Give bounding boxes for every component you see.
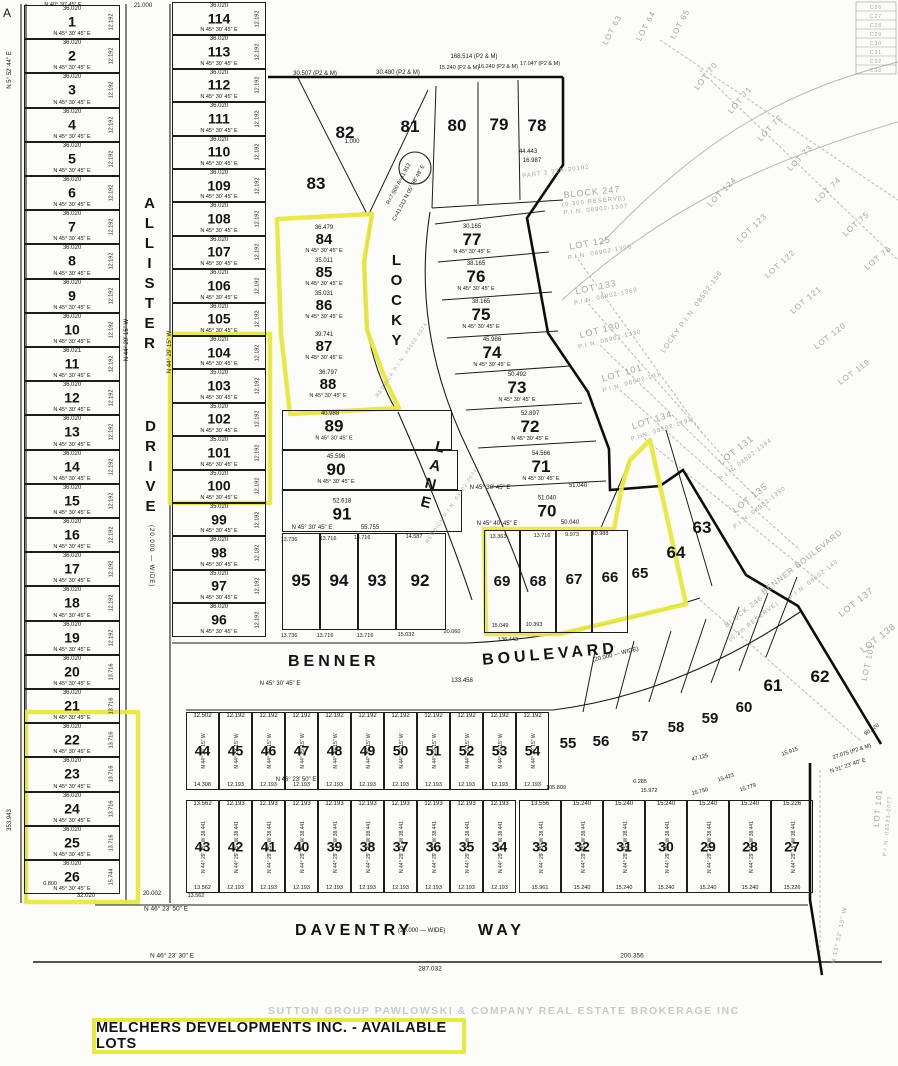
lot-14: 36.02014N 45° 30' 45" E12.192 <box>24 450 120 484</box>
parcel-outline <box>282 450 458 490</box>
lot-58: 58 <box>668 720 685 736</box>
dimension-label: 13.716 <box>534 533 551 539</box>
map-linework <box>0 0 898 1066</box>
street-label-drive: DRIVE <box>142 418 159 518</box>
dimension-label: 16.240 (P2 & M) <box>478 64 518 70</box>
dimension-label: 168.514 (P2 & M) <box>450 54 497 60</box>
dimension-label: 287.032 <box>418 966 442 973</box>
legend-box: MELCHERS DEVELOPMENTS INC. - AVAILABLE L… <box>92 1018 466 1054</box>
adjacent-lot-label: LOT 135 <box>730 481 769 515</box>
adjacent-lot-label: C29 <box>870 32 882 38</box>
dimension-label: 14.587 <box>406 534 423 540</box>
lot-19: 36.02019N 45° 30' 45" E12.192 <box>24 621 120 655</box>
lot-101: 35.020101N 45° 30' 45" E12.192 <box>172 436 266 469</box>
lot-44: 12.5024414.308N 44° 29' 15" W <box>186 712 219 790</box>
lot-113: 36.020113N 45° 30' 45" E12.192 <box>172 35 266 68</box>
lot-33: 13.5563315.961N 44° 29' 15" W 38.441 <box>519 800 561 893</box>
dimension-label: 40.988 <box>321 411 339 417</box>
lot-28: 15.2402815.240N 44° 29' 15" W 38.441 <box>729 800 771 893</box>
dimension-label: 20.002 <box>143 891 161 897</box>
lot-84: 36.47984N 45° 30' 45" E <box>305 225 342 255</box>
lot-8: 36.0208N 45° 30' 45" E12.192 <box>24 244 120 278</box>
adjacent-lot-label: LOT 122 <box>763 248 797 280</box>
lot-55: 55 <box>560 736 577 752</box>
adjacent-lot-label: LOT 71 <box>726 85 754 116</box>
lot-6: 36.0206N 45° 30' 45" E12.192 <box>24 176 120 210</box>
dimension-label: 13.716 <box>354 535 371 541</box>
dimension-label: 47.125 <box>691 753 709 763</box>
lot-40: 12.1934012.193N 44° 29' 15" W 38.441 <box>285 800 318 893</box>
lot-9: 36.0209N 45° 30' 45" E12.192 <box>24 279 120 313</box>
dimension-label: 15.032 <box>398 632 415 638</box>
lot-93: 93 <box>368 572 387 590</box>
lot-41: 12.1934112.193N 44° 29' 15" W 38.441 <box>252 800 285 893</box>
lot-102: 35.020102N 45° 30' 45" E12.192 <box>172 403 266 436</box>
adjacent-lot-label: LOT 76 <box>863 244 894 272</box>
dimension-label: 55.755 <box>361 525 379 531</box>
adjacent-lot-label: C27 <box>870 14 882 20</box>
lot-49: 12.1924912.193N 44° 29' 15" W <box>351 712 384 790</box>
dimension-label: 32.020 <box>77 893 95 899</box>
lot-48: 12.1924812.193N 44° 29' 15" W <box>318 712 351 790</box>
lot-29: 15.2402915.240N 44° 29' 15" W 38.441 <box>687 800 729 893</box>
lot-62: 62 <box>811 668 830 686</box>
lot-36: 12.1933612.193N 44° 29' 15" W 38.441 <box>417 800 450 893</box>
lot-3: 36.0203N 45° 30' 45" E12.192 <box>24 73 120 107</box>
adjacent-lot-label: C32 <box>870 59 882 65</box>
dimension-label: 50.040 <box>561 520 579 526</box>
adjacent-lot-label: LOCKY P.I.N. 08502-156 <box>660 270 724 355</box>
dimension-label: N 5° 52' 44" E <box>7 51 13 88</box>
lot-99: 35.02099N 45° 30' 45" E12.192 <box>172 503 266 536</box>
lot-23: 36.02023N 45° 30' 45" E13.716 <box>24 757 120 791</box>
adjacent-lot-label: P.I.N. 03533-0077 <box>882 795 893 856</box>
lot-12: 36.02012N 45° 30' 45" E12.192 <box>24 381 120 415</box>
lot-85: 35.01185N 45° 30' 45" E <box>305 258 342 288</box>
dimension-label: A <box>3 6 11 20</box>
dimension-label: 30.507 (P2 & M) <box>293 71 337 77</box>
lot-34: 12.1933412.193N 44° 29' 15" W 38.441 <box>483 800 516 893</box>
lot-26: 36.02026N 45° 30' 45" E15.744 <box>24 860 120 894</box>
adjacent-lot-label: LOT 138 <box>858 621 897 655</box>
dimension-label: N 46° 23' 50" E <box>276 777 317 783</box>
lot-35: 12.1933512.193N 44° 29' 15" W 38.441 <box>450 800 483 893</box>
adjacent-lot-label: LOT 123 <box>735 212 769 245</box>
lot-87: 39.74187N 45° 30' 45" E <box>305 332 342 362</box>
lot-72: 52.89772N 45° 30' 45" E <box>511 411 548 443</box>
lot-74: 45.98674N 45° 30' 45" E <box>473 337 510 369</box>
lot-5: 36.0205N 45° 30' 45" E12.192 <box>24 142 120 176</box>
dimension-label: N 46° 23' 30" E <box>150 953 194 960</box>
dimension-label: 17.047 (P2 & M) <box>520 61 560 67</box>
dimension-label: 15.240 (P2 & M) <box>439 65 479 71</box>
street-label-benner: BENNER <box>288 653 380 671</box>
dimension-label: 13.736 <box>281 537 298 543</box>
lot-107: 36.020107N 45° 30' 45" E12.192 <box>172 236 266 269</box>
lot-71: 54.56671N 45° 30' 45" E <box>522 451 559 483</box>
lot-39: 12.1933912.193N 44° 29' 15" W 38.441 <box>318 800 351 893</box>
lot-53: 12.1925312.193N 44° 29' 15" W <box>483 712 516 790</box>
adjacent-lot-label: C33 <box>870 68 882 74</box>
lot-94: 94 <box>330 572 349 590</box>
adjacent-lot-label: LOT 73 <box>785 143 814 173</box>
lot-4: 36.0204N 45° 30' 45" E12.192 <box>24 108 120 142</box>
dimension-label: 133.458 <box>451 678 473 684</box>
lot-69: 69 <box>494 574 511 590</box>
dimension-label: 10.988 <box>592 531 609 537</box>
lot-108: 36.020108N 45° 30' 45" E12.192 <box>172 202 266 235</box>
dimension-label: 27.075 (P2 & M) <box>832 743 872 761</box>
dimension-label: 44.443 <box>519 149 537 155</box>
dimension-label: 9.973 <box>565 532 579 538</box>
lot-10: 36.02010N 45° 30' 45" E12.192 <box>24 313 120 347</box>
dimension-label: N 45° 30' 45" E <box>292 525 333 531</box>
dimension-label: 200.356 <box>620 953 644 960</box>
lot-68: 68 <box>530 574 547 590</box>
dimension-label: 15.750 <box>691 787 709 797</box>
lot-95: 95 <box>292 572 311 590</box>
lot-27: 15.2262715.226N 44° 29' 15" W 38.441 <box>771 800 813 893</box>
adjacent-lot-label: LOT 70 <box>692 60 719 91</box>
street-label-boulevard: BOULEVARD <box>481 640 618 670</box>
dimension-label: 16.987 <box>523 158 541 164</box>
dimension-label: 353.943 <box>7 809 13 831</box>
adjacent-lot-label: LOT 74 <box>813 175 843 204</box>
street-label-daventry: DAVENTRY <box>295 922 413 940</box>
lot-88: 36.79788N 45° 30' 45" E <box>309 370 346 400</box>
lot-38: 12.1933812.193N 44° 29' 15" W 38.441 <box>351 800 384 893</box>
adjacent-lot-label: C28 <box>870 23 882 29</box>
lot-73: 50.49273N 45° 30' 45" E <box>498 372 535 404</box>
adjacent-lot-label: LOT 119 <box>836 357 872 386</box>
lot-111: 36.020111N 45° 30' 45" E12.192 <box>172 102 266 135</box>
lot-77: 30.16577N 45° 30' 45" E <box>453 224 490 256</box>
dimension-label: 51.040 <box>569 483 587 489</box>
lot-78: 78 <box>528 117 547 135</box>
adjacent-lot-label: LOT 131 <box>716 433 755 467</box>
adjacent-lot-label: LOT 121 <box>789 284 824 315</box>
lot-42: 12.1934212.193N 44° 29' 15" W 38.441 <box>219 800 252 893</box>
lot-22: 36.02022N 45° 30' 45" E13.716 <box>24 723 120 757</box>
subdivision-plat-map: ALLISTER DRIVE (20.000 — WIDE) LOCKY LAN… <box>0 0 898 1066</box>
dimension-label: 13.736 <box>281 633 298 639</box>
lot-43: 13.5624313.562N 44° 29' 15" W 38.441 <box>186 800 219 893</box>
lot-103: 35.020103N 45° 30' 45" E12.192 <box>172 369 266 402</box>
dimension-label: N 46° 23' 50" E <box>144 906 188 913</box>
dimension-label: 30.480 (P2 & M) <box>376 70 420 76</box>
lot-45: 12.1924512.193N 44° 29' 15" W <box>219 712 252 790</box>
lot-70: 51.04070 <box>538 496 557 521</box>
dimension-label: 15.972 <box>641 788 658 794</box>
lot-2: 36.0202N 45° 30' 45" E12.192 <box>24 39 120 73</box>
adjacent-lot-label: LOT 137 <box>836 585 875 619</box>
dimension-label: 13.363 <box>490 534 507 540</box>
dimension-label: 105.809 <box>546 785 566 791</box>
dimension-label: 6.285 <box>633 779 647 785</box>
lot-17: 36.02017N 45° 30' 45" E12.192 <box>24 552 120 586</box>
lot-76: 38.16576N 45° 30' 45" E <box>457 261 494 293</box>
lot-110: 36.020110N 45° 30' 45" E12.192 <box>172 136 266 169</box>
lot-60: 60 <box>736 700 753 716</box>
adjacent-lot-label: LOT 120 <box>812 321 847 351</box>
lot-11: 36.02111N 45° 30' 45" E12.192 <box>24 347 120 381</box>
lot-90: 45.59690N 45° 30' 45" E <box>317 454 354 486</box>
lot-61: 61 <box>764 677 783 695</box>
dimension-label: 1.000 <box>344 139 359 145</box>
street-label-daventry-width: (20.000 — WIDE) <box>398 928 445 934</box>
adjacent-lot-label: PART 2 33R-20102 <box>522 164 590 179</box>
adjacent-lot-label: C31 <box>870 50 882 56</box>
dimension-label: 21.000 <box>134 3 152 9</box>
parcel-outline <box>282 410 452 450</box>
lot-18: 36.02018N 45° 30' 45" E12.192 <box>24 586 120 620</box>
lot-32: 15.2403215.240N 44° 29' 15" W 38.441 <box>561 800 603 893</box>
lot-92: 92 <box>411 572 430 590</box>
lot-25: 36.02025N 45° 30' 45" E13.716 <box>24 826 120 860</box>
lot-51: 12.1925112.193N 44° 29' 15" W <box>417 712 450 790</box>
lot-75: 38.16575N 45° 30' 45" E <box>462 299 499 331</box>
lot-52: 12.1925212.193N 44° 29' 15" W <box>450 712 483 790</box>
lot-64: 64 <box>667 544 686 562</box>
dimension-label: N 40° 30' 45" E <box>44 2 81 8</box>
dimension-label: 15.915 <box>781 746 799 757</box>
street-label-way: WAY <box>478 922 525 940</box>
lot-66: 66 <box>602 570 619 586</box>
lot-81: 81 <box>401 118 420 136</box>
lot-105: 36.020105N 45° 30' 45" E12.192 <box>172 303 266 336</box>
adjacent-lot-label: LOT 65 <box>668 8 691 41</box>
lot-24: 36.02024N 45° 30' 45" E13.716 <box>24 792 120 826</box>
lot-56: 56 <box>593 734 610 750</box>
adjacent-lot-label: LOT 75 <box>841 210 871 238</box>
lot-67: 67 <box>566 572 583 588</box>
adjacent-lot-label: LOT 72 <box>756 113 784 143</box>
lot-13: 36.02013N 45° 30' 45" E12.192 <box>24 415 120 449</box>
lot-21: 36.02021N 45° 30' 45" E13.716 <box>24 689 120 723</box>
dimension-label: N 45° 40' 45" E <box>477 521 518 527</box>
dimension-label: N 45° 30' 45" E <box>470 485 511 491</box>
adjacent-lot-label: C26 <box>870 5 882 11</box>
street-label-locky: LOCKY <box>388 252 405 352</box>
adjacent-lot-label: LOT 63 <box>600 14 623 47</box>
lot-54: 12.1925412.193N 44° 29' 15" W <box>516 712 549 790</box>
dimension-label: 15.779 <box>739 783 757 794</box>
lot-20: 36.02020N 45° 30' 45" E13.716 <box>24 655 120 689</box>
dimension-label: 0.800 <box>43 881 57 887</box>
lot-114: 36.020114N 45° 30' 45" E12.192 <box>172 2 266 35</box>
lot-31: 15.2403115.240N 44° 29' 15" W 38.441 <box>603 800 645 893</box>
dimension-label: 13.716 <box>317 633 334 639</box>
legend-label: MELCHERS DEVELOPMENTS INC. - AVAILABLE L… <box>96 1020 462 1052</box>
lot-83: 83 <box>307 175 326 193</box>
lot-16: 36.02016N 45° 30' 45" E12.192 <box>24 518 120 552</box>
lot-59: 59 <box>702 711 719 727</box>
lot-65: 65 <box>632 566 649 582</box>
lot-112: 36.020112N 45° 30' 45" E12.192 <box>172 69 266 102</box>
adjacent-lot-label: LOT 64 <box>634 10 657 43</box>
street-label-allister: ALLISTER <box>141 195 158 355</box>
dimension-label: 13.716 <box>357 633 374 639</box>
lot-86: 35.03186N 45° 30' 45" E <box>305 291 342 321</box>
watermark: SUTTON GROUP PAWLOWSKI & COMPANY REAL ES… <box>268 1005 740 1017</box>
lot-80: 80 <box>448 117 467 135</box>
lot-1: 36.0201N 45° 30' 45" E12.192 <box>24 5 120 39</box>
lot-106: 36.020106N 45° 30' 45" E12.192 <box>172 269 266 302</box>
dimension-label: 15.423 <box>717 773 735 784</box>
dimension-label: N 44° 29' 15" W <box>167 331 173 373</box>
dimension-label: N 45° 30' 45" E <box>260 681 301 687</box>
dimension-label: 10.393 <box>526 622 543 628</box>
lot-37: 12.1933712.193N 44° 29' 15" W 38.441 <box>384 800 417 893</box>
lot-104: 36.020104N 45° 30' 45" E12.192 <box>172 336 266 369</box>
adjacent-lot-label: BLOCK 246 <box>724 595 765 629</box>
dimension-label: 20.060 <box>444 629 461 635</box>
lot-100: 35.020100N 45° 30' 45" E12.192 <box>172 470 266 503</box>
lot-50: 12.1925012.193N 44° 29' 15" W <box>384 712 417 790</box>
lot-98: 36.02098N 45° 30' 45" E12.192 <box>172 536 266 569</box>
lot-15: 36.02015N 45° 30' 45" E12.192 <box>24 484 120 518</box>
lot-7: 36.0207N 45° 30' 45" E12.192 <box>24 210 120 244</box>
lot-57: 57 <box>632 729 649 745</box>
dimension-label: 13.716 <box>320 536 337 542</box>
dimension-label: 136.443 <box>498 637 518 643</box>
lot-91: 52.61891 <box>333 499 352 524</box>
lot-63: 63 <box>693 519 712 537</box>
adjacent-lot-label: C30 <box>870 41 882 47</box>
street-label-drive-width: (20.000 — WIDE) <box>148 525 154 587</box>
lot-97: 35.02097N 45° 30' 45" E12.192 <box>172 570 266 603</box>
lot-89: 89N 45° 30' 45" E <box>315 418 352 443</box>
lot-30: 15.2403015.240N 44° 29' 15" W 38.441 <box>645 800 687 893</box>
lot-79: 79 <box>490 116 509 134</box>
dimension-label: N 44° 29' 15" W <box>124 319 130 361</box>
adjacent-lot-label: N 13° 52' 15" W <box>831 906 849 963</box>
lot-96: 36.02096N 45° 30' 45" E12.192 <box>172 603 266 636</box>
dimension-label: 15.049 <box>492 623 509 629</box>
lot-109: 36.020109N 45° 30' 45" E12.192 <box>172 169 266 202</box>
adjacent-lot-label: LOT 101 <box>872 789 884 828</box>
dimension-label: 90.820 <box>863 723 880 738</box>
dimension-label: 13.562 <box>188 893 205 899</box>
adjacent-lot-label: LOT 124 <box>706 175 739 209</box>
